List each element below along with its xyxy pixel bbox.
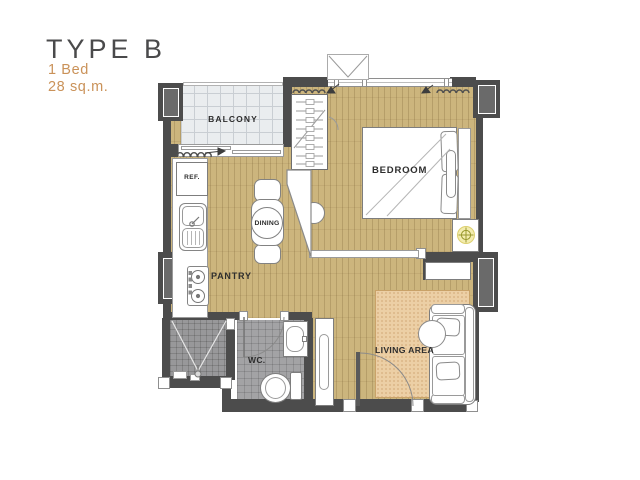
bed-headboard — [458, 128, 471, 219]
bedside-table — [452, 219, 479, 252]
sofa-pillow — [436, 361, 461, 380]
plan-beds: 1 Bed — [48, 62, 108, 79]
entry-door-leaf — [356, 352, 360, 406]
soap-shelf — [173, 371, 187, 379]
room-label-bedroom: BEDROOM — [372, 165, 427, 176]
wall-jamb — [343, 399, 356, 412]
column — [478, 85, 496, 114]
stool — [303, 202, 325, 224]
column — [163, 88, 179, 117]
wall-jamb — [226, 318, 235, 330]
wardrobe — [291, 94, 328, 170]
toilet-seat — [265, 377, 286, 399]
shower-floor — [170, 318, 228, 378]
wall-jamb — [158, 377, 170, 389]
balcony-railing — [183, 82, 283, 86]
window-tick — [444, 78, 449, 87]
refrigerator-label: REF. — [177, 174, 207, 181]
sliding-partition-track — [309, 250, 419, 258]
room-label-balcony: BALCONY — [195, 114, 271, 124]
wall — [162, 318, 170, 380]
wall — [283, 77, 330, 87]
stove — [187, 266, 209, 306]
entry-cabinet-door — [319, 334, 329, 390]
sink-drainboard — [182, 228, 204, 248]
sliding-door-panel — [232, 150, 281, 154]
plan-title: TYPE B — [46, 34, 166, 65]
wall-jamb — [411, 399, 424, 412]
wall — [226, 330, 235, 380]
sofa-armrest — [431, 304, 465, 314]
sofa-backrest — [465, 307, 474, 402]
sink-bowl — [182, 206, 204, 226]
window-mullion — [328, 82, 452, 83]
room-label-wc: WC. — [248, 355, 265, 365]
basin-faucet — [302, 336, 307, 342]
ac-ledge — [327, 54, 369, 80]
room-label-living-area: LIVING AREA — [375, 345, 434, 355]
wall — [423, 252, 474, 262]
refrigerator: REF. — [176, 162, 208, 196]
bolster-pillow — [446, 150, 456, 198]
tv-console — [425, 262, 471, 280]
sliding-door-panel — [181, 146, 231, 150]
plan-area: 28 sq.m. — [48, 79, 108, 96]
toilet-tank — [290, 372, 302, 400]
column — [478, 258, 494, 307]
plan-subtitle: 1 Bed 28 sq.m. — [48, 62, 108, 95]
wall-jamb — [220, 377, 232, 389]
coffee-table — [418, 320, 446, 348]
floor-plan-page: TYPE B 1 Bed 28 sq.m. — [0, 0, 640, 480]
wall — [163, 155, 171, 255]
soap-shelf — [190, 374, 200, 381]
wall-jamb — [239, 311, 248, 321]
dining-chair — [254, 244, 281, 264]
dining-label: DINING — [252, 220, 282, 227]
wall-jamb — [280, 311, 289, 321]
room-label-pantry: PANTRY — [211, 271, 252, 281]
dining-table-top: DINING — [251, 207, 283, 239]
